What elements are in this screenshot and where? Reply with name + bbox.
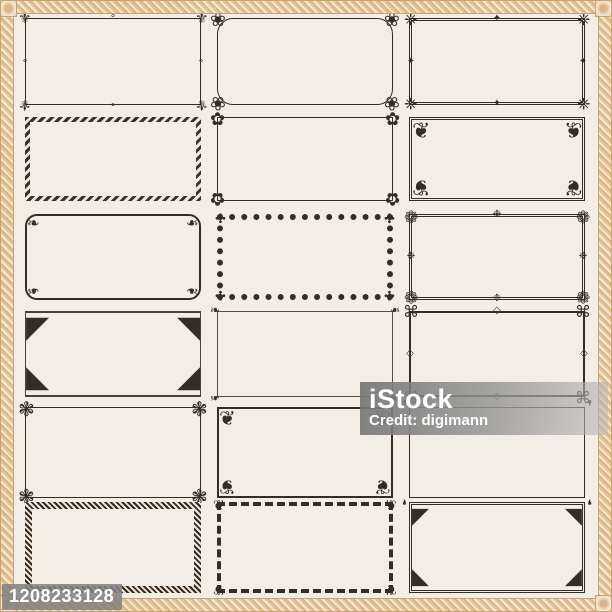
damask-triangle-icon: ◤ (412, 568, 429, 590)
scroll-dot-icon: ❜ (587, 489, 592, 505)
floret-accent-icon: ❉ (491, 294, 503, 304)
frame-ornament-band (25, 117, 201, 201)
cross-floret-icon: ❈ (404, 13, 417, 29)
frame-border: ✣✣✣✣ (217, 214, 393, 300)
frame-double-line-cross-corners: ❈❈❈❈✦✦✦✦ (409, 18, 585, 105)
sprig-icon: ❁ (576, 209, 590, 226)
scroll-icon: ❦ (213, 583, 225, 597)
scroll-icon: ❧ (186, 216, 199, 231)
damask-triangle-icon: ◤ (26, 365, 49, 395)
rose-icon: ✿ (210, 190, 225, 208)
damask-triangle-icon: ◤ (26, 313, 49, 343)
acanthus-fan-icon: ❦ (564, 120, 582, 142)
watermark-brand-logo: iStock (369, 384, 608, 415)
frame-rounded-rosette-corners: ❀❀❀❀ (217, 18, 393, 105)
small-scroll-icon: ❧ (210, 304, 220, 316)
sprig-icon: ❁ (576, 288, 590, 305)
acanthus-fan-icon: ❦ (564, 176, 582, 198)
frame-border: ◤◤◤◤ (409, 502, 585, 593)
rose-icon: ✿ (385, 110, 400, 128)
plume-icon: ❦ (374, 476, 391, 496)
frame-border: ❀❀❀❀ (217, 18, 393, 105)
crossed-frond-icon: ❃ (18, 400, 35, 420)
frame-rose-corners: ✿✿✿✿ (217, 117, 393, 201)
diamond-accent-icon: ✦ (491, 99, 503, 109)
frame-rounded-scroll-corners: ❧❧❧❧ (25, 214, 201, 300)
watermark: iStock Credit: digimann (360, 382, 608, 435)
frame-border: ⚜⚜⚜⚜∘∘∘∘ (25, 18, 201, 105)
frame-beaded-band: ✣✣✣✣ (217, 214, 393, 300)
floret-icon: ✣ (215, 212, 226, 225)
plume-icon: ❦ (219, 476, 236, 496)
floret-accent-icon: ❉ (491, 210, 503, 220)
greek-key-icon: ⌘ (575, 305, 591, 321)
floret-icon: ✣ (215, 289, 226, 302)
damask-triangle-icon: ◤ (565, 505, 582, 527)
gold-corner-rosette-icon (595, 0, 612, 17)
crossed-frond-icon: ❃ (191, 400, 208, 420)
scroll-icon: ❧ (27, 283, 40, 298)
frames-grid: ⚜⚜⚜⚜∘∘∘∘ ❀❀❀❀ ❈❈❈❈✦✦✦✦ ✿✿✿✿ ❦❦❦❦ ❧❧❧❧ ✣✣… (0, 0, 612, 612)
diamond-accent-icon: ◇ (491, 306, 503, 316)
rose-icon: ✿ (385, 190, 400, 208)
diamond-accent-icon: ✦ (491, 14, 503, 24)
scroll-icon: ❧ (186, 283, 199, 298)
frame-border: ❧❧❧❧ (25, 214, 201, 300)
watermark-credit: Credit: digimann (369, 412, 608, 429)
frame-guilloche-band (25, 502, 201, 593)
damask-triangle-icon: ◤ (177, 365, 200, 395)
gold-ornament-border-top (0, 0, 612, 14)
frame-border: ✿✿✿✿ (217, 117, 393, 201)
frame-octagon-damask-corners: ◤◤◤◤ (409, 502, 585, 593)
stock-image-canvas: ⚜⚜⚜⚜∘∘∘∘ ❀❀❀❀ ❈❈❈❈✦✦✦✦ ✿✿✿✿ ❦❦❦❦ ❧❧❧❧ ✣✣… (0, 0, 612, 612)
frame-border: ❁❁❁❁❉❉❉❉ (409, 214, 585, 300)
gold-corner-rosette-icon (0, 0, 17, 17)
frame-border (25, 117, 201, 201)
gold-corner-rosette-icon (595, 595, 612, 612)
frame-border (25, 502, 201, 593)
frame-floral-sprig-corners: ❁❁❁❁❉❉❉❉ (409, 214, 585, 300)
scroll-dot-icon: ❜ (402, 489, 407, 505)
damask-triangle-icon: ◤ (177, 313, 200, 343)
floret-accent-icon: ❉ (405, 252, 417, 262)
fleur-de-lis-icon: ⚜ (195, 97, 208, 112)
photo-id-badge: 1208233128 (2, 584, 122, 610)
scroll-icon: ❦ (385, 583, 397, 597)
floret-icon: ✣ (384, 289, 395, 302)
frame-acanthus-fan-corners: ❦❦❦❦ (409, 117, 585, 201)
diamond-accent-icon: ◇ (578, 349, 590, 359)
sprig-icon: ❁ (404, 209, 418, 226)
acanthus-fan-icon: ❦ (412, 176, 430, 198)
frame-border: ❈❈❈❈✦✦✦✦ (409, 18, 585, 105)
scroll-icon: ❦ (385, 498, 397, 512)
acanthus-fan-icon: ❦ (412, 120, 430, 142)
floret-icon: ✣ (384, 212, 395, 225)
scroll-icon: ❦ (213, 498, 225, 512)
frame-border: ❦❦❦❦ (217, 502, 393, 593)
greek-key-icon: ⌘ (403, 305, 419, 321)
frame-fleur-de-lis-corners: ⚜⚜⚜⚜∘∘∘∘ (25, 18, 201, 105)
small-scroll-icon: ❧ (390, 304, 400, 316)
scroll-accent-icon: ∘ (195, 57, 207, 67)
cross-floret-icon: ❈ (404, 94, 417, 110)
scroll-accent-icon: ∘ (19, 57, 31, 67)
cross-floret-icon: ❈ (577, 94, 590, 110)
cross-floret-icon: ❈ (577, 13, 590, 29)
frame-border: ❃❃❃❃ (25, 407, 201, 498)
rose-icon: ✿ (210, 110, 225, 128)
fleur-de-lis-icon: ⚜ (18, 97, 31, 112)
plume-icon: ❦ (219, 409, 236, 429)
frame-border: ❦❦❦❦ (409, 117, 585, 201)
diamond-accent-icon: ✦ (577, 57, 589, 67)
floret-accent-icon: ❉ (577, 252, 589, 262)
scroll-accent-icon: ∘ (107, 101, 119, 111)
frame-damask-triangle-corners: ◤◤◤◤ (25, 311, 201, 397)
scroll-icon: ❧ (27, 216, 40, 231)
diamond-accent-icon: ◇ (404, 349, 416, 359)
small-scroll-icon: ❧ (210, 392, 220, 404)
sprig-icon: ❁ (404, 288, 418, 305)
gold-ornament-border-right (598, 0, 612, 612)
frame-chain-band-scroll-corners: ❦❦❦❦ (217, 502, 393, 593)
gold-ornament-border-left (0, 0, 14, 612)
frame-border: ◤◤◤◤ (25, 311, 201, 397)
damask-triangle-icon: ◤ (565, 568, 582, 590)
diamond-accent-icon: ✦ (405, 57, 417, 67)
damask-triangle-icon: ◤ (412, 505, 429, 527)
frame-crossed-frond-corners: ❃❃❃❃ (25, 407, 201, 498)
